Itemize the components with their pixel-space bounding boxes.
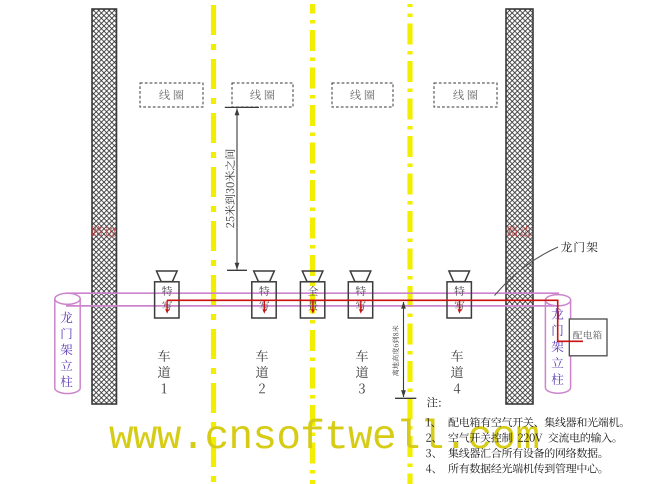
svg-text:www.cnsoftwell.com: www.cnsoftwell.com [109, 415, 539, 461]
